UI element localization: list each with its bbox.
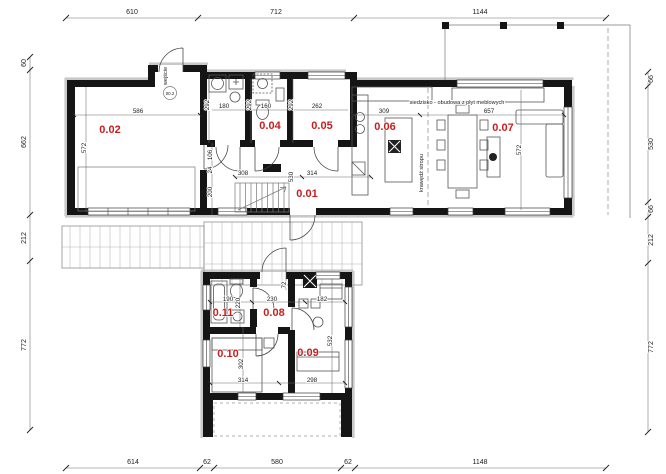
outer-dimension-label: 60 bbox=[21, 59, 28, 67]
outer-dimension-label: 530 bbox=[648, 138, 655, 150]
room-label-0.11: 0.11 bbox=[213, 307, 234, 319]
window bbox=[308, 72, 345, 79]
floor-plan-canvas: 6107121144614625806211486066221277266530… bbox=[0, 0, 666, 474]
window bbox=[283, 393, 320, 400]
dimension-label: 309 bbox=[379, 108, 390, 115]
terrace-post bbox=[442, 22, 449, 29]
window bbox=[390, 208, 413, 215]
chimney-icon bbox=[303, 274, 317, 288]
dimension-label: 532 bbox=[327, 335, 334, 346]
room-label-0.01: 0.01 bbox=[296, 188, 317, 200]
outer-dimension-label: 66 bbox=[648, 205, 655, 213]
annotation-label: krawędź stropu bbox=[419, 154, 425, 192]
room-label-0.02: 0.02 bbox=[99, 124, 120, 136]
dimension-label: 292 bbox=[204, 99, 211, 110]
dimension-label: 160 bbox=[261, 103, 272, 110]
window bbox=[218, 208, 247, 215]
dimension-label: 572 bbox=[516, 144, 523, 155]
window bbox=[457, 80, 543, 87]
window bbox=[203, 285, 210, 310]
dimension-label: 572 bbox=[81, 142, 88, 153]
window bbox=[316, 272, 340, 279]
garage-gate bbox=[88, 208, 190, 215]
window bbox=[238, 393, 256, 400]
dimension-label: 230 bbox=[267, 296, 278, 303]
dimension-label: 657 bbox=[484, 108, 495, 115]
outer-dimension-label: 62 bbox=[203, 459, 211, 466]
room-label-0.08: 0.08 bbox=[263, 307, 284, 319]
dimension-label: 180 bbox=[219, 103, 230, 110]
dimension-label: 308 bbox=[238, 170, 249, 177]
outer-dimension-label: 62 bbox=[344, 459, 352, 466]
outer-dimension-label: 772 bbox=[21, 339, 28, 351]
dimension-label: 220 bbox=[235, 297, 242, 308]
window-wall-glazing bbox=[564, 107, 572, 198]
floor-plan-drawing: 6107121144614625806211486066221277266530… bbox=[0, 0, 666, 474]
dimension-label: 292 bbox=[288, 99, 295, 110]
outer-dimension-label: 580 bbox=[271, 459, 283, 466]
dimension-label: 182 bbox=[317, 296, 328, 303]
window bbox=[345, 340, 352, 388]
room-label-0.04: 0.04 bbox=[259, 120, 281, 132]
outer-dimension-label: 212 bbox=[21, 232, 28, 244]
dimension-label: 262 bbox=[312, 103, 323, 110]
dimension-label: 586 bbox=[133, 108, 144, 115]
outer-dimension-label: 614 bbox=[127, 459, 139, 466]
outer-dimension-label: 772 bbox=[648, 341, 655, 353]
dimension-label: 24 bbox=[207, 166, 214, 173]
window bbox=[448, 208, 473, 215]
room-label-0.05: 0.05 bbox=[311, 120, 332, 132]
dimension-label: 302 bbox=[238, 358, 245, 369]
dimension-label: 298 bbox=[307, 377, 318, 384]
outer-dimension-label: 712 bbox=[270, 9, 282, 16]
outer-dimension-label: 212 bbox=[648, 234, 655, 246]
window bbox=[203, 340, 210, 367]
dimension-label: 314 bbox=[238, 377, 249, 384]
dimension-label: 314 bbox=[307, 170, 318, 177]
outer-dimension-label: 1144 bbox=[472, 9, 487, 16]
dimension-label: 530 bbox=[288, 171, 295, 182]
terrace-post bbox=[500, 22, 507, 29]
dimension-label: 200 bbox=[207, 186, 214, 197]
dimension-label: 292 bbox=[246, 99, 253, 110]
annotation-label: siedzisko - obudowa z płyt meblowych bbox=[410, 100, 505, 106]
outer-dimension-label: 66 bbox=[648, 75, 655, 83]
outer-dimension-label: 662 bbox=[21, 136, 28, 148]
window bbox=[255, 72, 280, 79]
annotation-label: wejście bbox=[163, 67, 169, 86]
outer-dimension-label: 1148 bbox=[472, 459, 487, 466]
dimension-label: 72 bbox=[281, 281, 288, 288]
window bbox=[505, 208, 550, 215]
room-label-0.09: 0.09 bbox=[297, 347, 318, 359]
dimension-label: 106 bbox=[207, 149, 214, 160]
room-label-0.06: 0.06 bbox=[374, 121, 395, 133]
stair-parapet bbox=[263, 164, 281, 172]
room-label-0.10: 0.10 bbox=[217, 348, 238, 360]
annotation-label: 00.2 bbox=[166, 91, 175, 96]
outer-dimension-label: 610 bbox=[126, 9, 138, 16]
window bbox=[345, 287, 352, 327]
dimension-label: 190 bbox=[223, 296, 234, 303]
room-label-0.07: 0.07 bbox=[492, 122, 513, 134]
terrace-post bbox=[557, 22, 564, 29]
